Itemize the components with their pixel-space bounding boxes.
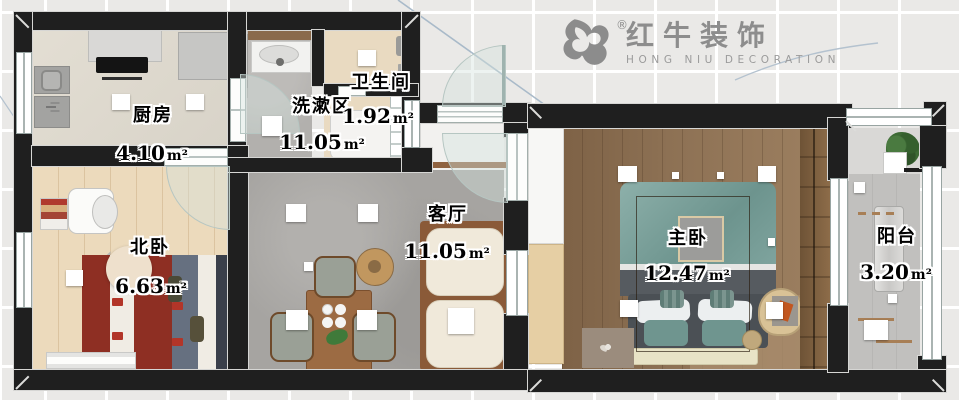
kitchen-cabinet (178, 32, 228, 80)
wall (828, 304, 848, 372)
washing-area-area-value: 11.05 (279, 130, 342, 154)
ceiling-light (186, 94, 204, 110)
kitchen-area: 4.10m² (116, 141, 188, 165)
stove-vent-line (102, 77, 142, 80)
kitchen-sink-lower (34, 96, 70, 128)
ceiling-light (66, 270, 83, 286)
window (16, 52, 32, 134)
bathroom-area: 1.92m² (342, 104, 414, 128)
kitchen-label: 厨房 (133, 101, 173, 127)
living-room-area-unit: m² (469, 246, 490, 262)
master-bedroom-area-value: 12.47 (644, 261, 707, 285)
ceiling-light (758, 166, 776, 182)
wall (228, 146, 248, 372)
wall (14, 12, 420, 30)
north-bedroom-area-unit: m² (166, 281, 187, 297)
ceiling-light (286, 310, 308, 330)
master-bedroom-area: 12.47m² (644, 261, 730, 285)
side-stool (742, 330, 762, 350)
ceiling-light (358, 50, 376, 66)
bathroom-area-unit: m² (393, 111, 414, 127)
round-side-table-inner (368, 260, 381, 273)
wall (402, 148, 432, 172)
wardrobe (800, 126, 830, 374)
ceiling-light (620, 300, 638, 317)
balcony-area-unit: m² (911, 267, 932, 283)
wall (312, 30, 324, 86)
ceiling-light (864, 320, 888, 340)
bookshelf (40, 198, 68, 230)
ceiling-light (112, 94, 130, 110)
ceiling-light (854, 182, 865, 193)
balcony-label: 阳台 (877, 222, 917, 248)
tableware-icon (322, 304, 333, 315)
washing-area-area-unit: m² (344, 137, 365, 153)
balcony-area-value: 3.20 (860, 260, 909, 284)
balcony-tile-dashes (858, 212, 894, 215)
ceiling-light (672, 172, 679, 179)
living-room-area-value: 11.05 (404, 239, 467, 263)
wall (14, 370, 528, 390)
registered-mark: ® (616, 18, 628, 32)
master-closet-white (528, 128, 564, 244)
rug-flower-mark (600, 342, 616, 352)
kitchen-area-unit: m² (167, 148, 188, 164)
wall (504, 314, 528, 372)
hongniu-bull-icon (560, 18, 614, 70)
window (16, 232, 32, 308)
bathroom-area-value: 1.92 (342, 104, 391, 128)
north-bedroom-area: 6.63m² (115, 274, 187, 298)
wall (920, 126, 946, 168)
ceiling-light (768, 238, 775, 246)
floor-plan-canvas: 厨房 4.10m² 洗漱区 11.05m² 卫生间 1.92m² 北卧 6.63… (0, 0, 960, 400)
wall (528, 104, 852, 128)
master-bedroom-area-unit: m² (709, 268, 730, 284)
sink-basin-icon (41, 70, 62, 91)
stove (96, 57, 148, 73)
ceiling-light (358, 204, 378, 222)
north-bedroom-area-value: 6.63 (115, 274, 164, 298)
ceiling-light (286, 204, 306, 222)
master-closet-wood (528, 244, 564, 364)
brand-subtitle: HONG NIU DECORATION (626, 54, 840, 66)
north-bedroom-label: 北卧 (130, 233, 170, 259)
radiator (46, 352, 136, 369)
vanity-shelf (248, 30, 312, 40)
wall (228, 158, 420, 172)
ceiling-light (304, 262, 313, 271)
ceiling-light (448, 308, 474, 334)
entry-door-panel-line (502, 45, 505, 105)
vanity-drain-icon (276, 58, 284, 66)
toy-figure (190, 316, 204, 342)
balcony-sliding-door (830, 178, 848, 306)
ceiling-light (717, 172, 724, 179)
entry-door (437, 105, 503, 123)
brand-name: 红牛装饰 (626, 22, 840, 50)
kitchen-area-value: 4.10 (116, 141, 165, 165)
wall (528, 370, 946, 392)
bathroom-label: 卫生间 (351, 68, 411, 94)
living-room-area: 11.05m² (404, 239, 490, 263)
wall (504, 198, 528, 254)
ceiling-light (357, 310, 377, 330)
balcony-area: 3.20m² (860, 260, 932, 284)
wardrobe-rail-line (813, 128, 815, 372)
master-bedroom-label: 主卧 (668, 224, 708, 250)
ceiling-light (766, 302, 783, 319)
wall (828, 118, 848, 180)
window (506, 250, 528, 316)
dining-chair-top (314, 256, 356, 298)
window (846, 108, 932, 126)
ceiling-light (618, 166, 637, 182)
ceiling-light (888, 294, 897, 303)
brand-logo: ® 红牛装饰 HONG NIU DECORATION (560, 18, 840, 70)
living-room-door (506, 133, 528, 201)
faucet-icon (46, 106, 56, 108)
washing-area-area: 11.05m² (279, 130, 365, 154)
bed-print-marks (112, 298, 123, 306)
desk-chair (92, 195, 118, 229)
living-room-label: 客厅 (428, 200, 468, 226)
logo-text-block: 红牛装饰 HONG NIU DECORATION (626, 22, 840, 66)
